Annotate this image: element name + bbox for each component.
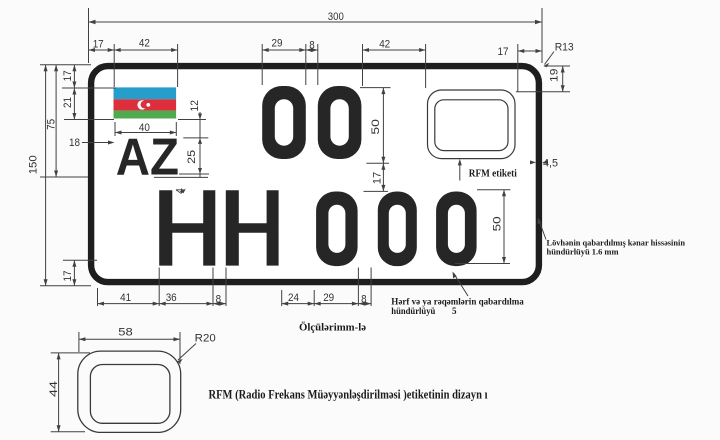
- svg-text:58: 58: [118, 327, 133, 339]
- svg-text:RFM etiketi: RFM etiketi: [469, 169, 517, 180]
- svg-text:8: 8: [309, 40, 315, 52]
- svg-text:4,5: 4,5: [543, 158, 558, 170]
- svg-text:19: 19: [549, 68, 561, 82]
- svg-text:8: 8: [361, 293, 367, 305]
- svg-text:25: 25: [186, 150, 198, 164]
- svg-text:RFM (Radio Frekans Müəyyənləşd: RFM (Radio Frekans Müəyyənləşdirilməsi )…: [209, 387, 488, 402]
- svg-text:29: 29: [272, 38, 283, 50]
- svg-text:Lövhənin qabardılmış kənar his: Lövhənin qabardılmış kənar hissəsinin: [547, 239, 686, 248]
- svg-text:21: 21: [62, 97, 74, 108]
- svg-text:17: 17: [372, 172, 384, 185]
- svg-text:36: 36: [166, 292, 177, 304]
- svg-text:42: 42: [379, 39, 390, 51]
- svg-text:40: 40: [139, 122, 150, 134]
- svg-text:300: 300: [328, 11, 344, 23]
- svg-text:17: 17: [498, 46, 509, 58]
- svg-text:75: 75: [46, 119, 58, 130]
- svg-text:4: 4: [175, 188, 187, 194]
- svg-text:5: 5: [452, 306, 457, 316]
- svg-text:8: 8: [216, 293, 222, 305]
- svg-text:44: 44: [48, 381, 60, 397]
- svg-text:12: 12: [189, 100, 201, 112]
- svg-text:17: 17: [62, 270, 74, 281]
- svg-text:42: 42: [139, 38, 150, 50]
- svg-text:17: 17: [93, 39, 104, 51]
- svg-text:hündürlüyü 1.6 mm: hündürlüyü 1.6 mm: [547, 248, 619, 257]
- svg-text:R13: R13: [555, 42, 574, 54]
- svg-text:R20: R20: [195, 333, 216, 345]
- svg-text:29: 29: [323, 292, 334, 304]
- svg-text:17: 17: [62, 70, 74, 81]
- svg-text:50: 50: [492, 216, 504, 231]
- svg-text:50: 50: [370, 119, 382, 135]
- svg-text:hündürlüyü: hündürlüyü: [391, 306, 435, 316]
- svg-text:24: 24: [288, 292, 299, 304]
- svg-text:150: 150: [28, 155, 40, 174]
- svg-text:Hərf və ya rəqəmlərin qabardıl: Hərf və ya rəqəmlərin qabardılma: [391, 297, 524, 307]
- svg-text:18: 18: [69, 137, 80, 149]
- svg-text:41: 41: [120, 292, 131, 304]
- svg-text:Ölçülərimm-lə: Ölçülərimm-lə: [299, 321, 366, 334]
